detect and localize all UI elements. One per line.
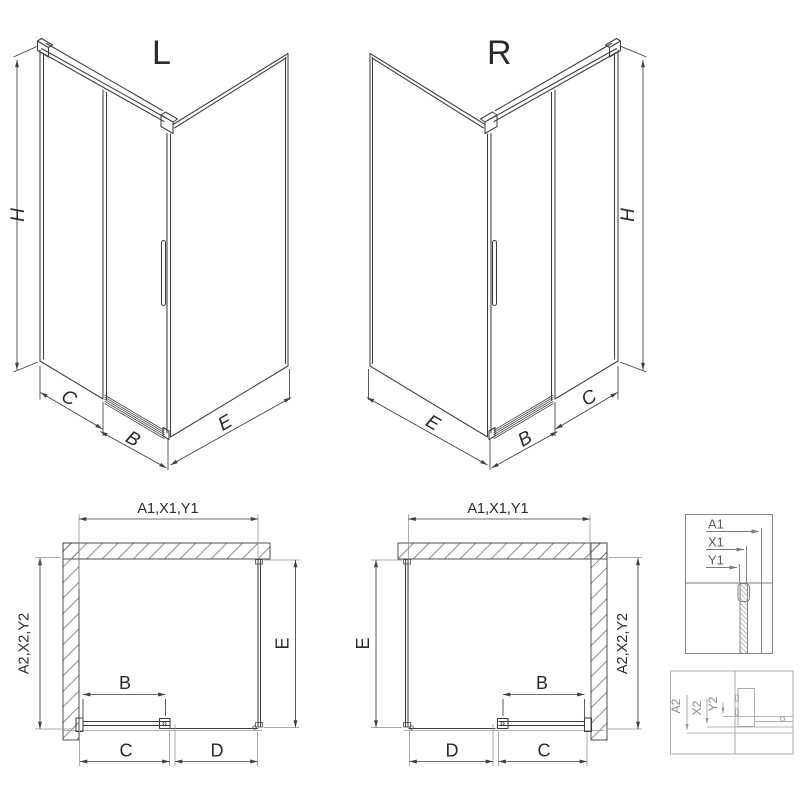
door-wall-bracket: [585, 718, 592, 732]
dim-label-b-right: B: [515, 427, 537, 452]
glass-mount-brackets: [404, 560, 411, 728]
door-divider-edge: [552, 90, 556, 400]
detail-frame: [686, 515, 773, 654]
glass-mount-brackets: [256, 560, 263, 728]
detail-label-x1: X1: [708, 535, 724, 550]
view-title-left: L: [152, 34, 171, 72]
dim-label-h-right: H: [618, 208, 639, 222]
threshold-endcap: [489, 428, 495, 440]
side-glass-panel: [171, 54, 289, 438]
roller-housing: [738, 689, 755, 727]
dim-label-c-left: C: [58, 386, 81, 411]
door-roller-housing: [160, 719, 171, 729]
dim-label-e-left: E: [215, 411, 237, 436]
detail-label-y2: Y2: [706, 696, 720, 711]
fixed-glass-left: [406, 560, 409, 728]
sliding-door-bar: [499, 722, 585, 726]
dim-label-e-right: E: [422, 411, 444, 436]
wall-profile-hatch: [740, 583, 748, 653]
door-roller-housing: [498, 719, 509, 729]
technical-drawing-canvas: L H C B E R: [0, 0, 800, 800]
side-glass-panel: [370, 54, 488, 438]
threshold-endcap: [163, 428, 169, 440]
wall-top-hatched: [63, 543, 270, 559]
detail-view-top: A1 X1 Y1: [686, 515, 773, 654]
dim-label-a1x1y1: A1,X1,Y1: [467, 501, 528, 517]
corner-post: [167, 134, 171, 437]
fixing-screw: [780, 717, 784, 721]
dim-label-e: E: [273, 637, 293, 649]
sliding-door-bar: [83, 722, 170, 726]
detail-label-y1: Y1: [708, 553, 724, 568]
plan-view-left: A1,X1,Y1 A2,X2,Y2 E B C D: [17, 501, 300, 766]
dim-label-c: C: [538, 741, 551, 761]
detail-view-bottom: A2 X2 Y2: [669, 671, 793, 754]
door-section-lines: [687, 717, 793, 734]
dim-label-c: C: [120, 741, 133, 761]
view-title-right: R: [487, 34, 512, 72]
dim-label-c-right: C: [578, 386, 601, 411]
dim-label-d: D: [446, 741, 459, 761]
fixed-glass-right: [258, 560, 261, 728]
corner-post: [488, 134, 492, 437]
door-dim-extensions: [503, 699, 585, 718]
left-wall-glass-panel: [40, 50, 103, 399]
plan-view-right: A1,X1,Y1 E A2,X2,Y2 B D C: [353, 501, 642, 766]
door-handle: [493, 241, 497, 306]
iso-view-right: R H E B C: [367, 34, 647, 470]
diagram-page: L H C B E R: [0, 0, 800, 800]
dim-label-a2x2y2: A2,X2,Y2: [615, 613, 631, 674]
wall-left-hatched: [63, 543, 79, 740]
detail-frame: [671, 671, 794, 754]
dim-label-e: E: [353, 637, 373, 649]
door-divider-edge: [103, 90, 107, 400]
detail-label-a1: A1: [708, 517, 724, 532]
dim-label-a2x2y2: A2,X2,Y2: [17, 613, 33, 674]
dim-label-h-left: H: [8, 208, 29, 222]
iso-view-left: L H C B E: [8, 34, 291, 470]
roller-detail: [163, 722, 166, 725]
right-wall-glass-panel: [555, 50, 618, 399]
detail-label-a2: A2: [669, 698, 683, 713]
dim-label-d: D: [211, 741, 224, 761]
door-dim-extensions: [83, 699, 166, 718]
detail-label-x2: X2: [690, 700, 704, 715]
wall-right-hatched: [591, 543, 607, 740]
door-handle: [162, 241, 166, 306]
dim-label-b: B: [119, 673, 131, 693]
dim-label-b-left: B: [122, 427, 144, 452]
roller-detail: [501, 722, 504, 725]
dim-label-a1x1y1: A1,X1,Y1: [137, 501, 198, 517]
dim-label-b: B: [536, 673, 548, 693]
wall-top-hatched: [398, 543, 607, 559]
